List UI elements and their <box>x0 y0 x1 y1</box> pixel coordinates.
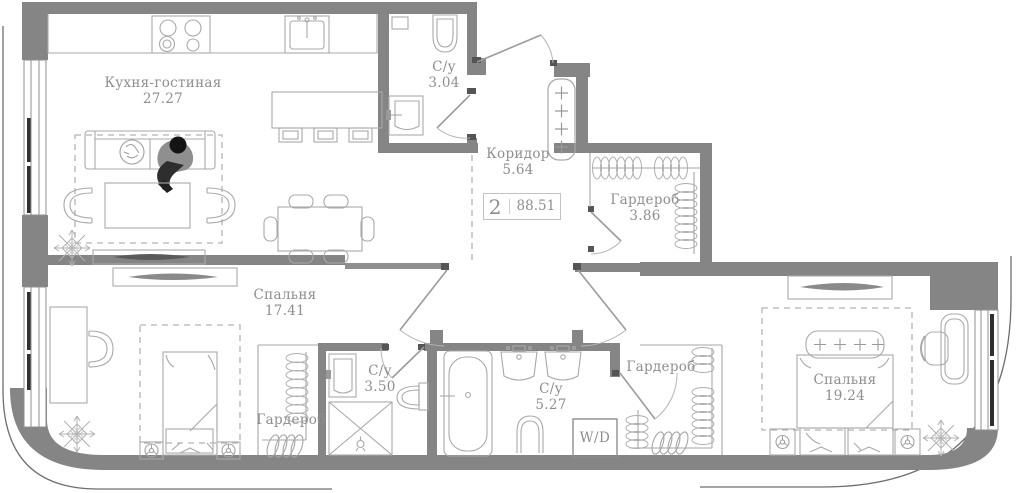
bed-bench <box>800 428 893 455</box>
shower-icon <box>329 402 392 455</box>
tv-console-bed2 <box>788 276 892 299</box>
bedroom2-hall-door <box>578 270 626 346</box>
room-label-corridor: Коридор 5.64 <box>486 147 549 179</box>
desk-bed1 <box>50 307 87 403</box>
shaft-box <box>392 17 408 29</box>
room-label-bathroom-mid: С/у 3.50 <box>364 364 395 396</box>
wardrobe-left <box>258 345 318 458</box>
toilet-icon-top <box>433 15 457 52</box>
room-area: 3.50 <box>364 380 395 396</box>
desk-bed2 <box>941 314 968 384</box>
room-label-bedroom-2: Спальня 19.24 <box>814 373 877 405</box>
hangers-coils <box>265 434 306 459</box>
total-area: 88.51 <box>517 200 556 214</box>
dining-table <box>264 195 374 263</box>
kitchen-island <box>272 92 382 142</box>
basin-icon-2 <box>545 346 581 380</box>
room-area: 5.27 <box>535 398 566 414</box>
bed1-zone-dash <box>140 325 240 443</box>
nightstand-right <box>895 429 920 455</box>
hangers-coils <box>650 431 691 456</box>
tv-console-bed1 <box>113 268 237 286</box>
desk-chair-bed2 <box>921 332 948 365</box>
sofa <box>85 131 215 169</box>
person-icon <box>157 137 193 194</box>
floor-plan-drawing <box>0 0 1020 493</box>
wall-bedroom2-top <box>640 262 932 276</box>
bed-single <box>163 352 217 455</box>
wall-left-pier-mid <box>22 215 48 287</box>
badge-divider <box>509 199 510 214</box>
living-area <box>54 131 235 266</box>
room-name: Коридор <box>486 146 549 162</box>
plant-icon-bed1 <box>59 416 95 452</box>
wall-bottom <box>100 455 832 470</box>
cat-doodle-icon <box>120 140 144 164</box>
wall-top <box>40 2 477 14</box>
room-label-wardrobe-right: Гардероб <box>626 360 695 376</box>
room-label-bedroom-1: Спальня 17.41 <box>254 288 317 320</box>
bed2-zone-dash <box>762 308 912 430</box>
room-area: 19.24 <box>814 389 877 405</box>
floor-plan: Кухня-гостиная 27.27 С/у 3.04 Коридор 5.… <box>0 0 1020 493</box>
window-left-top <box>24 60 46 215</box>
window-right <box>975 310 998 430</box>
room-name: Гардероб <box>256 412 325 428</box>
washer-dryer-label: W/D <box>580 430 611 446</box>
room-name: С/у <box>432 59 456 75</box>
room-area: 17.41 <box>254 304 317 320</box>
room-label-bathroom-main: С/у 5.27 <box>535 382 566 414</box>
kitchen-sink-icon <box>285 16 329 53</box>
toilet-icon-mid <box>397 383 428 410</box>
wall-left-pier-top <box>22 2 48 60</box>
desk-chair-bed1 <box>89 331 113 367</box>
room-name: Кухня-гостиная <box>104 75 221 91</box>
armchair-right <box>207 188 235 223</box>
toilet-icon-main <box>517 416 543 453</box>
area-summary-badge: 2 88.51 <box>483 193 561 220</box>
sink-icon-mid <box>326 354 356 397</box>
living-zone-dash <box>75 135 222 243</box>
plant-icon-bed2 <box>923 420 959 456</box>
bedroom-1 <box>50 268 240 459</box>
headboard-radiator <box>806 331 884 358</box>
hangers-side <box>626 416 648 449</box>
room-area: 27.27 <box>104 92 221 108</box>
wall-right-pier-top <box>930 262 998 310</box>
cooktop-icon <box>152 16 210 53</box>
room-name: Гардероб <box>610 192 679 208</box>
rooms-count: 2 <box>489 197 502 217</box>
entrance-door <box>477 35 553 63</box>
plant-icon-living <box>54 230 90 266</box>
zone-dashes <box>75 135 912 443</box>
room-name: Гардероб <box>626 359 695 375</box>
room-name: С/у <box>539 381 563 397</box>
coffee-table <box>105 183 190 228</box>
room-name: С/у <box>368 363 392 379</box>
room-area: 3.86 <box>610 209 679 225</box>
window-left-bottom <box>24 287 46 427</box>
bathtub-icon <box>440 351 492 456</box>
room-label-kitchen-living: Кухня-гостиная 27.27 <box>104 76 221 108</box>
room-area: 5.64 <box>486 163 549 179</box>
armchair-left <box>64 188 92 223</box>
room-label-wardrobe-left: Гардероб <box>256 413 325 429</box>
sink-icon-top <box>386 96 423 135</box>
basin-icon-1 <box>501 346 537 380</box>
bathroom-top-door <box>437 95 470 138</box>
room-label-bathroom-top: С/у 3.04 <box>428 60 459 92</box>
room-name: Спальня <box>814 372 877 388</box>
wall-corner-bottom-right <box>832 428 998 470</box>
kitchen-counter <box>48 14 377 53</box>
room-name: Спальня <box>254 287 317 303</box>
bathroom-main-door <box>620 373 677 419</box>
nightstand-left <box>770 429 795 455</box>
room-label-wardrobe-top: Гардероб 3.86 <box>610 193 679 225</box>
room-area: 3.04 <box>428 76 459 92</box>
